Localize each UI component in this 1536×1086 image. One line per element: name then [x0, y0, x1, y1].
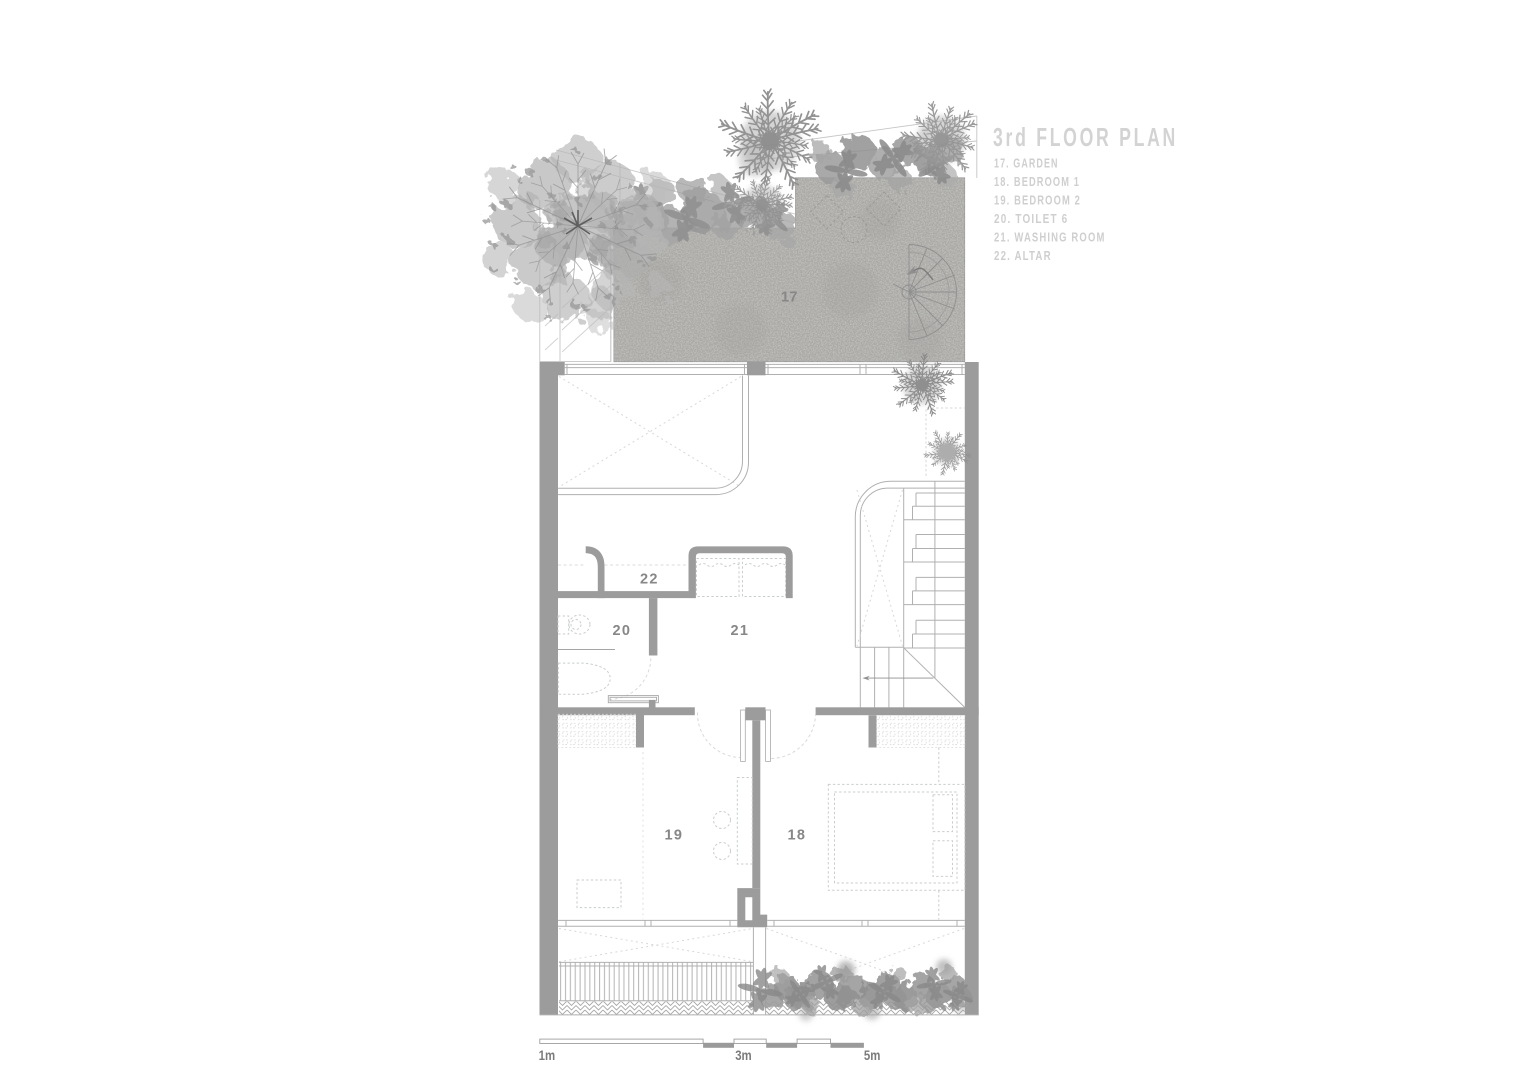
svg-text:17: 17	[781, 290, 800, 306]
svg-text:20. TOILET 6: 20. TOILET 6	[994, 212, 1068, 226]
svg-text:21: 21	[731, 623, 751, 639]
svg-text:3m: 3m	[735, 1047, 752, 1063]
svg-text:18. BEDROOM 1: 18. BEDROOM 1	[994, 175, 1080, 189]
svg-text:19: 19	[665, 828, 685, 844]
svg-text:19. BEDROOM 2: 19. BEDROOM 2	[994, 194, 1081, 208]
svg-text:22. ALTAR: 22. ALTAR	[994, 249, 1052, 263]
svg-text:17. GARDEN: 17. GARDEN	[994, 157, 1059, 171]
svg-text:3rd FLOOR PLAN: 3rd FLOOR PLAN	[993, 122, 1178, 152]
svg-text:1m: 1m	[539, 1047, 556, 1063]
svg-text:20: 20	[613, 623, 633, 639]
svg-text:5m: 5m	[864, 1047, 881, 1063]
svg-text:18: 18	[788, 828, 808, 844]
svg-text:22: 22	[640, 572, 660, 588]
svg-text:21. WASHING ROOM: 21. WASHING ROOM	[994, 231, 1106, 245]
